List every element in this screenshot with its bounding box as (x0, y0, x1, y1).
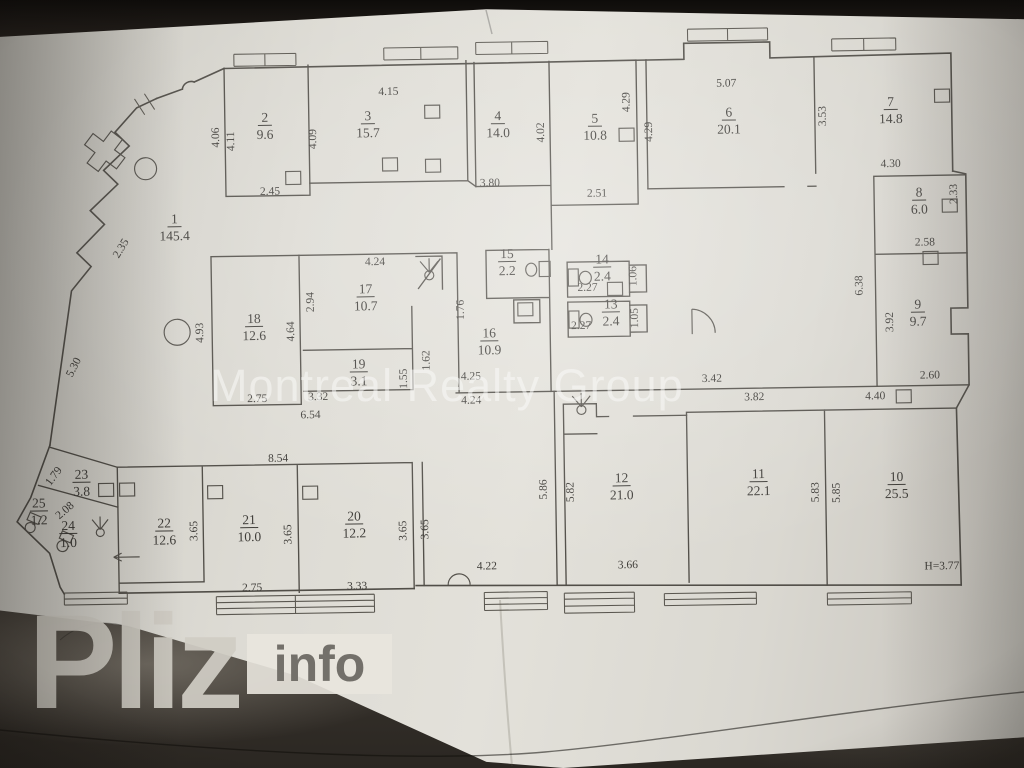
info-logo-text: info (274, 635, 366, 693)
info-logo-box: info (247, 634, 392, 694)
pliz-logo: Pliz (28, 596, 239, 730)
photo-of-floorplan: 1145.429.6315.7414.0510.8620.1714.886.09… (0, 0, 1024, 768)
watermark-text: Montreal Realty Group (210, 360, 684, 412)
